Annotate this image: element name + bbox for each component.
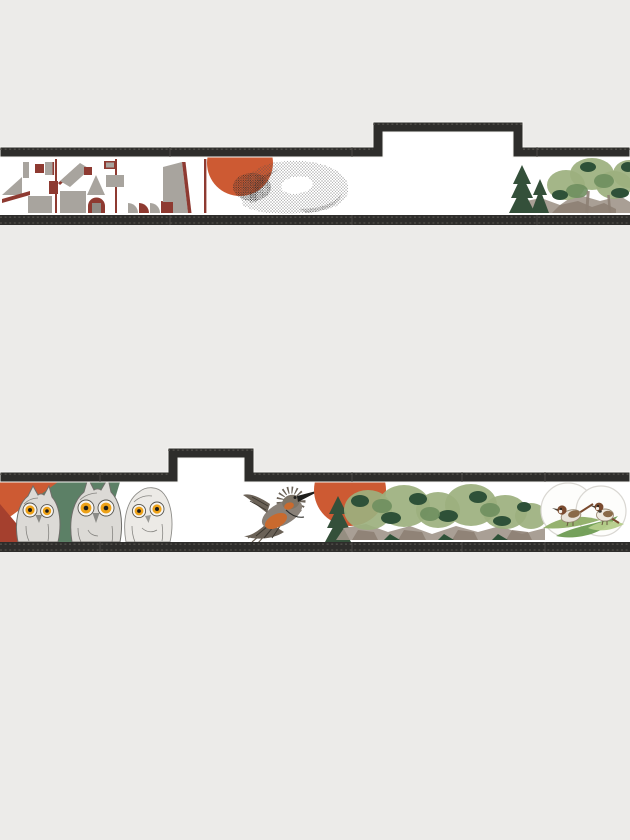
mural-elevation-canvas — [0, 0, 630, 840]
sparrows-illustration — [541, 483, 626, 537]
upper-wall-elevation — [0, 117, 630, 229]
lower-wall-elevation — [0, 444, 630, 556]
